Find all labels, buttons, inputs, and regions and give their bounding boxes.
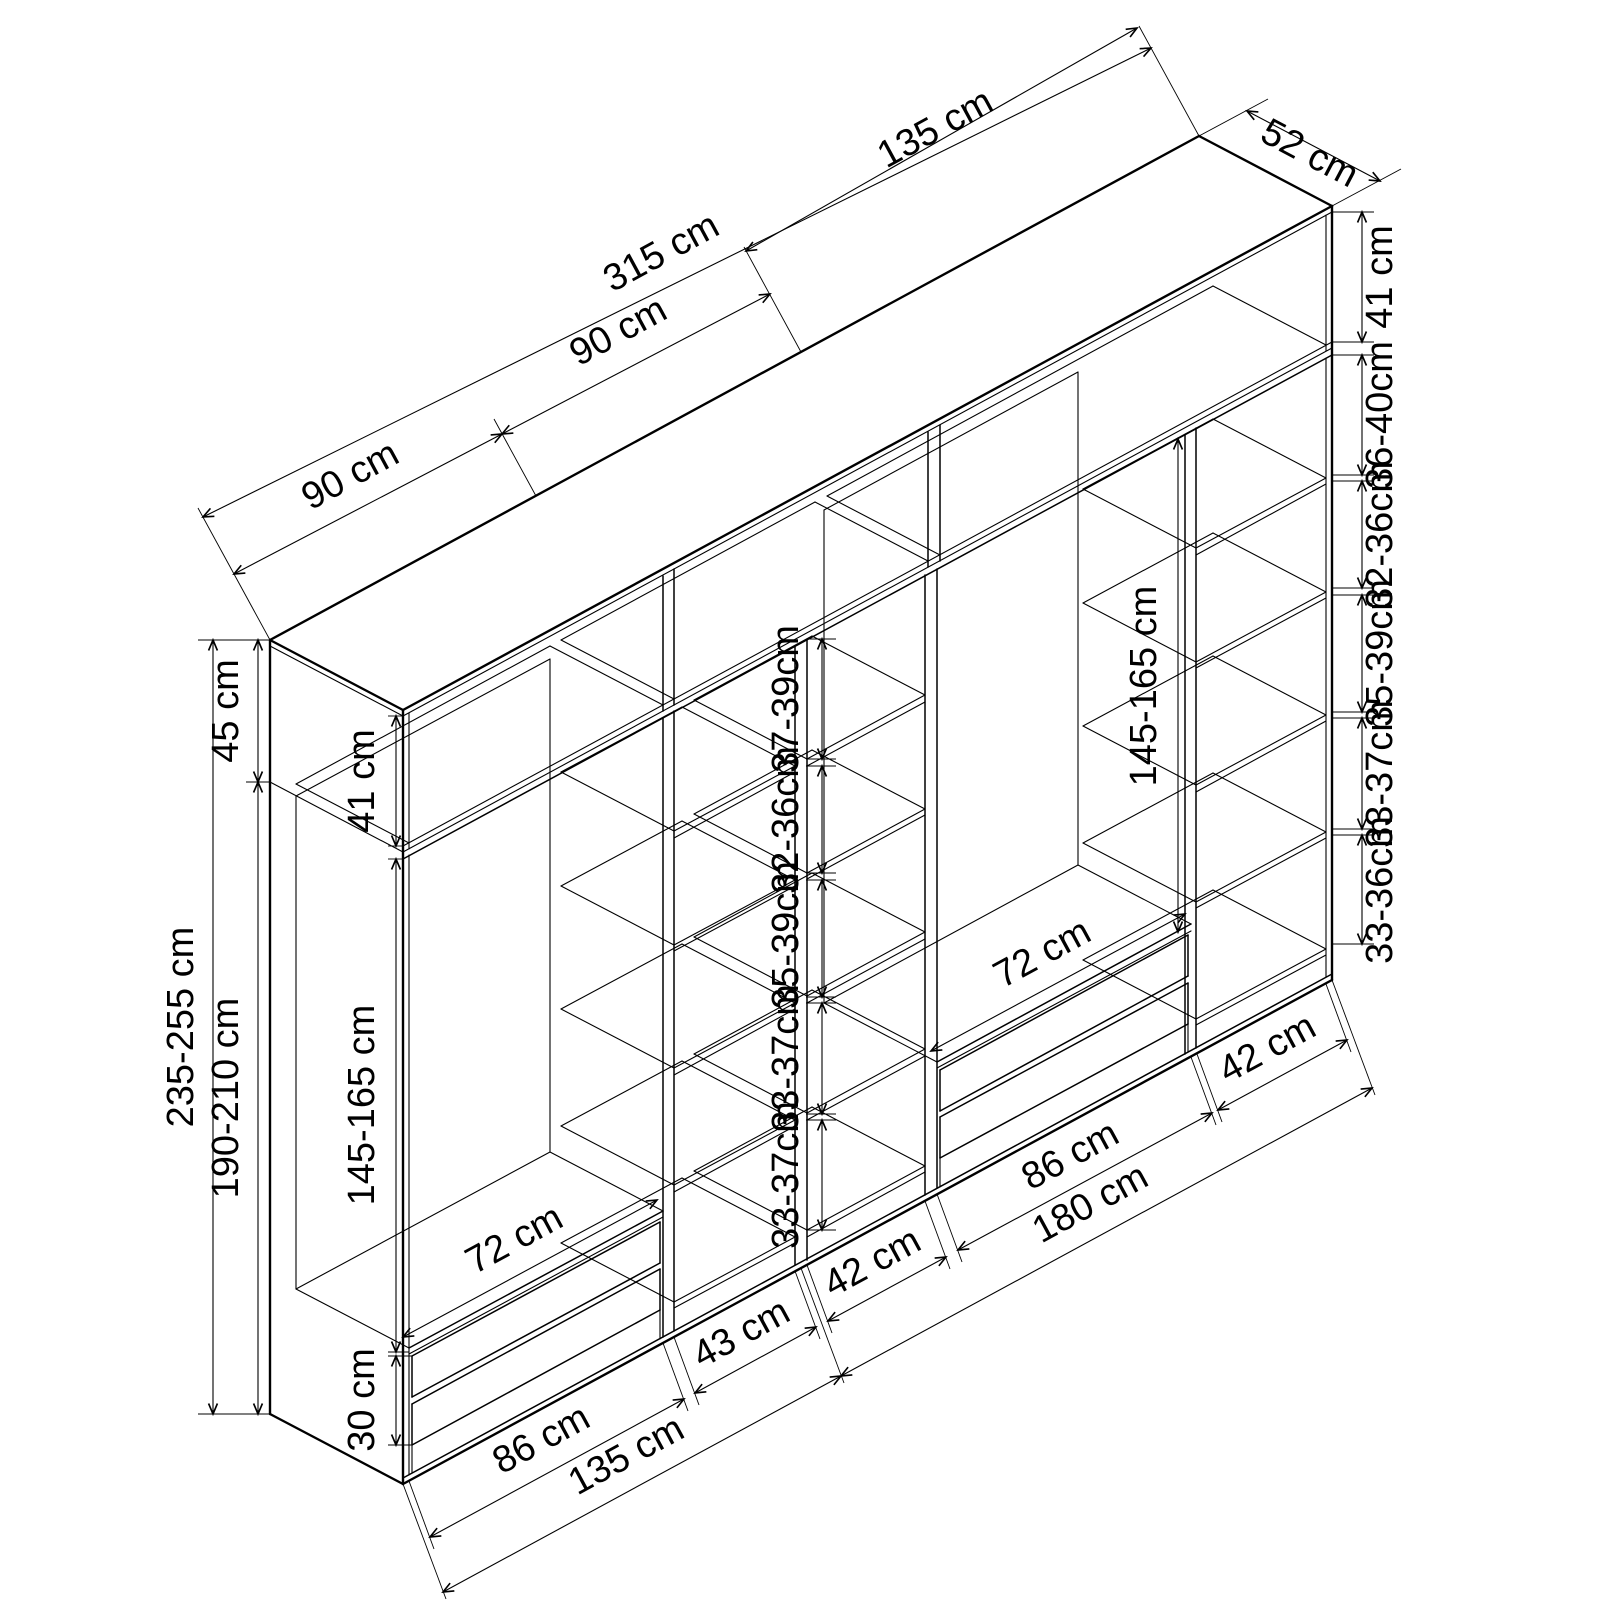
dim-label-right-gap-5: 33-36cm [1359, 816, 1401, 964]
dim-label-left-column-width-right-section: 42 cm [817, 1219, 928, 1305]
dimension-lines-center-column [806, 639, 836, 1230]
dim-label-top-module-right: 135 cm [870, 80, 1000, 176]
dimension-lines-top [198, 26, 1401, 640]
dim-label-top-box-interior-right: 41 cm [1359, 225, 1401, 328]
dim-label-right-column-width: 42 cm [1212, 1005, 1323, 1091]
dim-label-shelf-column-width-left: 43 cm [686, 1290, 797, 1376]
shelf-column-left-center [561, 707, 795, 1308]
shelf-column-right [1083, 419, 1326, 1025]
wardrobe-dimension-diagram: 90 cm 90 cm 315 cm 135 cm 52 cm 45 cm 23… [0, 0, 1600, 1600]
dim-label-carcass-height: 190-210 cm [205, 998, 247, 1199]
dim-label-depth: 52 cm [1254, 111, 1365, 196]
dim-label-total-width: 315 cm [596, 204, 726, 300]
dim-label-center-gap-5: 33-37cm [765, 1101, 807, 1249]
dim-label-top-module-left: 90 cm [295, 432, 406, 518]
drawer-unit-right [824, 865, 1191, 1187]
dim-label-drawer-stack-height: 30 cm [341, 1348, 383, 1451]
dim-label-hanging-height-right: 145-165 cm [1123, 586, 1165, 787]
dimension-labels: 90 cm 90 cm 315 cm 135 cm 52 cm 45 cm 23… [160, 80, 1401, 1503]
shelf-column-right-center [694, 636, 925, 1237]
dim-label-hanging-height-left: 145-165 cm [341, 1005, 383, 1206]
technical-drawing: 90 cm 90 cm 315 cm 135 cm 52 cm 45 cm 23… [0, 0, 1600, 1600]
dim-label-total-height: 235-255 cm [160, 927, 202, 1128]
dim-label-top-box-interior-left: 41 cm [341, 729, 383, 832]
dim-label-top-box-height: 45 cm [205, 659, 247, 762]
dimension-lines-left [198, 640, 657, 1445]
dim-label-top-module-mid: 90 cm [563, 288, 674, 374]
